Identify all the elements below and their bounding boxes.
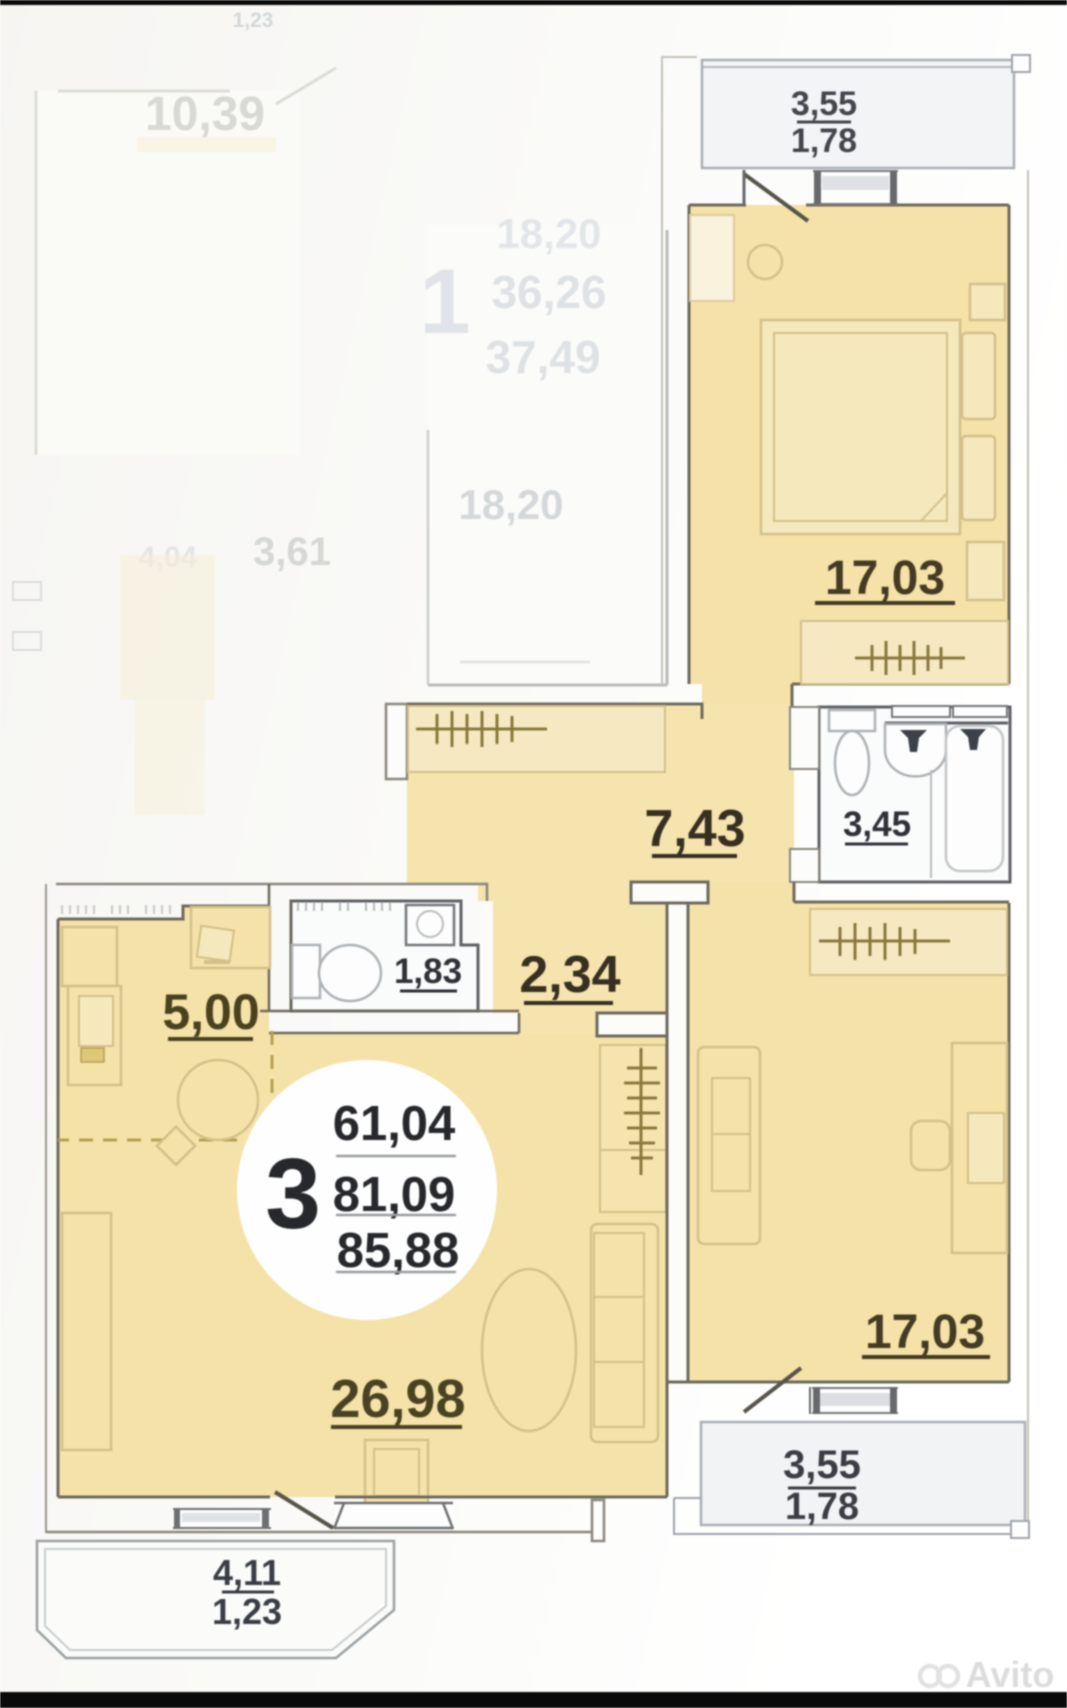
svg-text:85,88: 85,88 bbox=[337, 1224, 460, 1278]
svg-text:17,03: 17,03 bbox=[865, 1306, 985, 1359]
svg-text:3,45: 3,45 bbox=[843, 805, 911, 844]
svg-text:1,23: 1,23 bbox=[212, 1591, 282, 1632]
svg-text:1: 1 bbox=[419, 251, 470, 353]
svg-text:1,78: 1,78 bbox=[785, 1486, 859, 1528]
svg-text:37,49: 37,49 bbox=[485, 331, 600, 383]
svg-text:61,04: 61,04 bbox=[333, 1097, 456, 1151]
svg-text:7,43: 7,43 bbox=[644, 800, 745, 858]
svg-text:3,55: 3,55 bbox=[783, 1443, 861, 1487]
svg-text:18,20: 18,20 bbox=[496, 210, 601, 257]
svg-text:3,55: 3,55 bbox=[791, 85, 857, 123]
svg-text:26,98: 26,98 bbox=[330, 1369, 465, 1429]
svg-text:1,78: 1,78 bbox=[791, 122, 857, 160]
svg-text:3: 3 bbox=[265, 1138, 321, 1250]
svg-text:2,34: 2,34 bbox=[519, 946, 620, 1004]
svg-text:1,23: 1,23 bbox=[233, 9, 274, 32]
svg-text:18,20: 18,20 bbox=[458, 481, 563, 528]
svg-text:10,39: 10,39 bbox=[145, 88, 265, 141]
svg-text:5,00: 5,00 bbox=[162, 984, 259, 1040]
svg-text:4,11: 4,11 bbox=[213, 1552, 281, 1593]
svg-text:Avito: Avito bbox=[966, 1654, 1055, 1695]
svg-text:17,03: 17,03 bbox=[825, 552, 945, 605]
svg-text:3,61: 3,61 bbox=[253, 530, 331, 574]
svg-text:1,83: 1,83 bbox=[394, 952, 462, 991]
svg-text:36,26: 36,26 bbox=[491, 266, 606, 318]
